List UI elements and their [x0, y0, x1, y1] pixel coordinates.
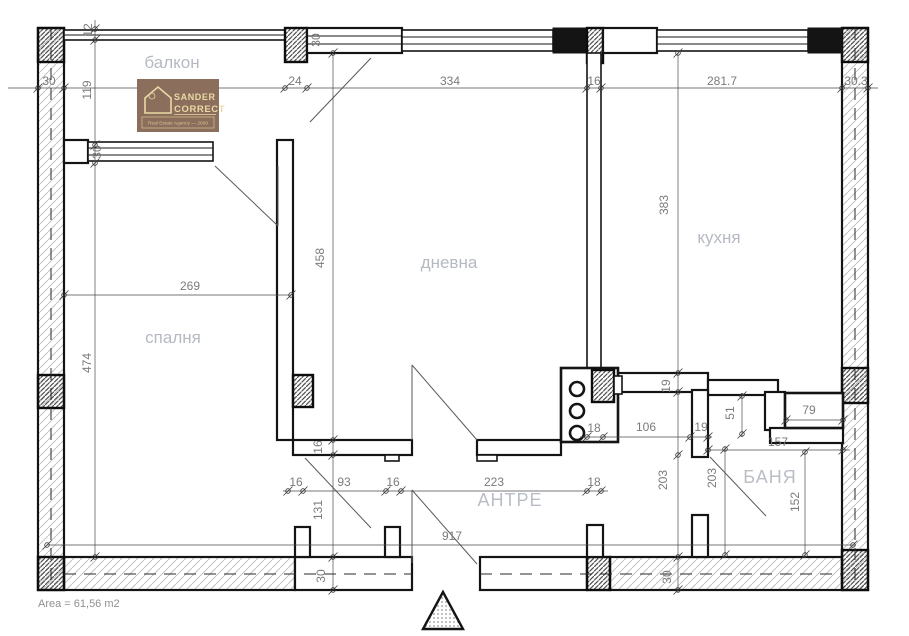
dim-hall-width: 223 — [484, 475, 504, 489]
dim-kitchen-hall: 106 — [636, 420, 656, 434]
dim-shaft-wall: 18 — [587, 421, 601, 435]
dim-living-width: 334 — [440, 74, 460, 88]
dim-rail: 12 — [81, 23, 95, 37]
room-label-bedroom: спалня — [145, 328, 201, 347]
dim-wall-mid: 16 — [311, 440, 325, 454]
dim-hall-depth: 131 — [311, 500, 325, 520]
room-label-bath: БАНЯ — [743, 467, 796, 487]
dim-niche-depth: 51 — [723, 406, 737, 420]
room-label-balcony: балкон — [144, 53, 199, 72]
dim-bedroom-height: 474 — [80, 353, 94, 373]
bedroom-balcony-door — [215, 166, 278, 226]
logo-name-2: CORRECT — [174, 104, 225, 115]
column — [293, 375, 313, 407]
dim-partition: 16 — [587, 74, 601, 88]
wall-stub — [64, 140, 88, 163]
area-label: Area = 61,56 m2 — [38, 598, 120, 610]
bottom-wall-left — [64, 557, 295, 590]
living-kitchen-partition — [587, 53, 601, 392]
logo-tagline: Real Estate Agency — 2000 — [148, 121, 208, 127]
dim-balcony-window: 30 — [90, 145, 104, 159]
dim-door-col: 24 — [288, 74, 302, 88]
dim-bedroom-door: 93 — [337, 475, 351, 489]
floor-plan-drawing: 30 24 334 16 281.7 30.3 12 119 30 474 30… — [0, 0, 909, 636]
dim-frame-left: 16 — [289, 475, 303, 489]
wall-stub — [295, 527, 310, 557]
dim-kitchen-wall-v: 19 — [659, 379, 673, 393]
hall-wall-right — [477, 440, 561, 455]
dim-wall-left: 30 — [42, 74, 56, 88]
dim-frame-right: 16 — [386, 475, 400, 489]
kitchen-window — [657, 30, 808, 51]
dim-bath-height-left: 203 — [656, 470, 670, 490]
triangle-marker-icon — [423, 592, 463, 629]
living-door — [412, 365, 477, 440]
dim-total-width: 917 — [442, 529, 462, 543]
room-label-living: дневна — [421, 253, 478, 272]
column — [285, 28, 307, 62]
wall-stub — [385, 527, 400, 557]
lintel — [553, 28, 587, 53]
bath-wall-lower — [692, 515, 708, 557]
entry-door — [412, 490, 477, 564]
wall-band — [603, 28, 657, 53]
logo-name-1: SANDER — [174, 92, 216, 102]
door-frame-notch — [477, 455, 497, 461]
dim-living-height: 458 — [313, 248, 327, 268]
floor-plan-canvas: 30 24 334 16 281.7 30.3 12 119 30 474 30… — [0, 0, 909, 636]
room-label-hall: АНТРЕ — [477, 490, 542, 510]
lintel — [808, 28, 842, 53]
dim-balcony-depth: 119 — [80, 80, 94, 99]
column — [592, 370, 614, 402]
wall-stub — [587, 525, 603, 557]
dim-bath-inner: 152 — [788, 492, 802, 512]
door-frame-notch — [385, 455, 399, 461]
dim-kitchen-wall-h: 19 — [694, 420, 708, 434]
dim-kitchen-width: 281.7 — [707, 74, 737, 88]
dim-wall-bottom-left: 30 — [314, 569, 328, 583]
dim-niche-width: 79 — [802, 403, 816, 417]
dim-wall-right: 30.3 — [844, 74, 868, 88]
bedroom-wall — [277, 140, 293, 440]
dim-wall-bottom-right: 30 — [660, 570, 674, 584]
living-balcony-door — [310, 58, 371, 122]
dim-bedroom-width: 269 — [180, 279, 200, 293]
agency-logo: SANDER CORRECT Real Estate Agency — 2000 — [137, 79, 225, 132]
bedroom-window — [88, 142, 213, 161]
dim-wall-top: 30 — [309, 33, 323, 47]
entry-arrow — [423, 592, 463, 629]
dim-kitchen-height: 383 — [657, 195, 671, 215]
dim-bath-height-right: 203 — [705, 468, 719, 488]
dim-hall-wall: 18 — [587, 475, 601, 489]
dim-bath-width: 157 — [768, 435, 788, 449]
room-label-kitchen: кухня — [697, 228, 740, 247]
shaft-tab — [614, 376, 622, 394]
living-window — [402, 30, 553, 51]
